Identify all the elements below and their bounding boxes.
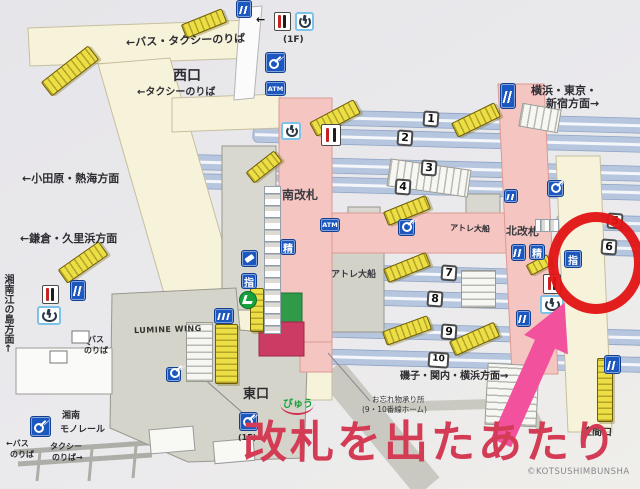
atm-icon: ATM	[320, 218, 340, 232]
escalator-icon	[500, 83, 516, 109]
label-taxi-bl-line1: タクシー	[50, 443, 82, 451]
platform-badge-7: 7	[440, 264, 457, 281]
label-isogo: 磯子・関内・横浜方面→	[400, 372, 508, 382]
label-bus-stop-line1: バス	[88, 336, 104, 344]
reserved-seat-label: 指	[568, 252, 578, 267]
label-taxi-west: ←タクシーのりば	[137, 88, 215, 98]
restroom-icon	[543, 274, 561, 294]
south-gate-machines	[264, 186, 281, 334]
escalator-icon	[236, 0, 252, 18]
label-monorail-line2: モノレール	[60, 426, 105, 435]
escalator-icon	[516, 310, 531, 327]
label-east-exit: 東口	[243, 388, 269, 401]
platform-badge-9: 9	[440, 323, 457, 340]
coin-locker-icon	[166, 367, 181, 382]
walkway-west-link	[172, 94, 280, 132]
coin-locker-icon	[30, 416, 51, 437]
platform-badge-8: 8	[426, 290, 443, 307]
escalator-icon	[504, 189, 518, 203]
label-atre-corridor: アトレ大船	[450, 224, 490, 233]
coin-locker-icon	[398, 219, 415, 236]
label-taxi-bl-line2: のりば→	[52, 454, 83, 462]
label-yokohama-line2: 新宿方面→	[546, 98, 599, 109]
reserved-seat-label: 指	[244, 274, 254, 289]
coin-locker-icon	[265, 52, 286, 73]
fare-adjustment-label: 精	[532, 245, 542, 260]
escalator-icon	[511, 244, 526, 261]
label-south-gate: 南改札	[282, 189, 318, 201]
restroom-icon	[321, 124, 341, 146]
midori-no-madoguchi-icon	[239, 291, 257, 309]
atm-icon: ATM	[265, 81, 286, 96]
escalator-icon	[214, 308, 234, 324]
annotation-headline: 改札を出たあたり	[243, 421, 619, 465]
label-bus-bl-line2: のりば	[10, 451, 34, 459]
restroom-icon	[42, 285, 59, 304]
label-floor-1f-top: (1F)	[283, 36, 304, 45]
platform-badge-6: 6	[600, 238, 617, 255]
platform-badge-1: 1	[422, 110, 439, 127]
label-bus-bl-line1: ←バス	[6, 440, 29, 448]
restroom-icon	[274, 12, 291, 31]
platform-badge-4: 4	[394, 178, 411, 195]
label-bus-stop-line2: のりば	[84, 347, 108, 355]
label-atre-building: アトレ大船	[331, 271, 376, 280]
fare-adjustment-icon: 精	[529, 244, 545, 260]
label-kamakura: ←鎌倉・久里浜方面	[20, 233, 117, 244]
label-north-gate: 北改札	[506, 225, 539, 237]
platform-badge-2: 2	[396, 129, 413, 146]
label-enoshima: 湘南江の島方面←	[2, 274, 12, 352]
accessible-restroom-icon	[295, 12, 314, 31]
escalator-icon	[604, 355, 621, 374]
label-lost-found-line1: お忘れ物承り所	[372, 396, 425, 404]
station-map: ATM ATM 精 指 精 指 1 2 3 4 5 6 7 8 9 10 ←バス…	[0, 0, 640, 489]
platform-badge-10: 10	[427, 351, 449, 368]
coin-locker-icon	[547, 180, 564, 197]
escalator-icon	[70, 280, 86, 301]
fare-adjustment-label: 精	[283, 240, 293, 255]
fare-adjustment-icon: 精	[280, 239, 296, 255]
atm-label: ATM	[322, 221, 337, 229]
label-monorail-line1: 湘南	[62, 412, 80, 421]
accessible-restroom-icon	[281, 122, 301, 140]
arrow-to-restrooms: ←	[256, 14, 265, 25]
accessible-restroom-icon	[540, 295, 564, 314]
reserved-seat-ticket-icon: 指	[564, 250, 582, 268]
label-west-exit: 西口	[173, 69, 201, 83]
ticket-machine-icon	[241, 250, 258, 267]
atre-building-box	[326, 244, 384, 332]
atm-label: ATM	[268, 85, 283, 93]
label-yokohama-line1: 横浜・東京・	[531, 85, 597, 96]
accessible-restroom-icon	[37, 306, 61, 325]
stairs	[461, 270, 496, 308]
label-lost-found-line2: (9・10番線ホーム)	[362, 406, 427, 414]
reserved-seat-ticket-icon: 指	[241, 273, 257, 289]
escalator-ramp	[215, 324, 238, 384]
platform-badge-3: 3	[420, 159, 437, 176]
platform-badge-5: 5	[606, 212, 623, 229]
label-odawara: ←小田原・熱海方面	[22, 173, 119, 184]
copyright-text: ©KOTSUSHIMBUNSHA	[527, 467, 630, 477]
monorail-tracks	[14, 443, 152, 481]
